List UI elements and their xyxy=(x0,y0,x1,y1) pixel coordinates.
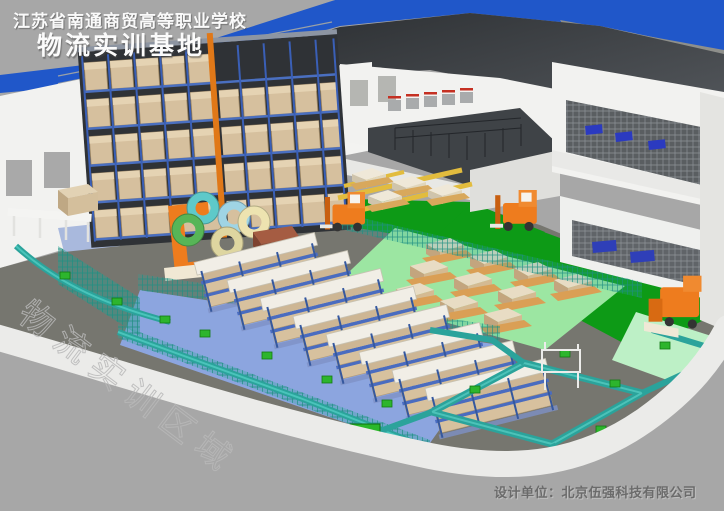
right-edge-wall xyxy=(700,92,724,330)
left-wall-window xyxy=(44,152,70,188)
design-credit: 设计单位：北京伍强科技有限公司 xyxy=(494,482,697,501)
blue-table xyxy=(630,250,655,263)
blue-table xyxy=(592,240,617,253)
facility-3d-scene: 物流实训区域 xyxy=(0,0,724,511)
render-canvas: 物流实训区域 江苏省南通商贸高等职业学校 物流实训基地 设计单位：北京伍强科技有… xyxy=(0,0,724,511)
page-title: 物流实训基地 xyxy=(37,26,205,62)
blue-bin xyxy=(585,124,603,135)
left-wall-window xyxy=(6,160,32,196)
blue-bin xyxy=(648,139,666,150)
blue-bin xyxy=(615,131,633,142)
carton-box xyxy=(58,184,98,216)
